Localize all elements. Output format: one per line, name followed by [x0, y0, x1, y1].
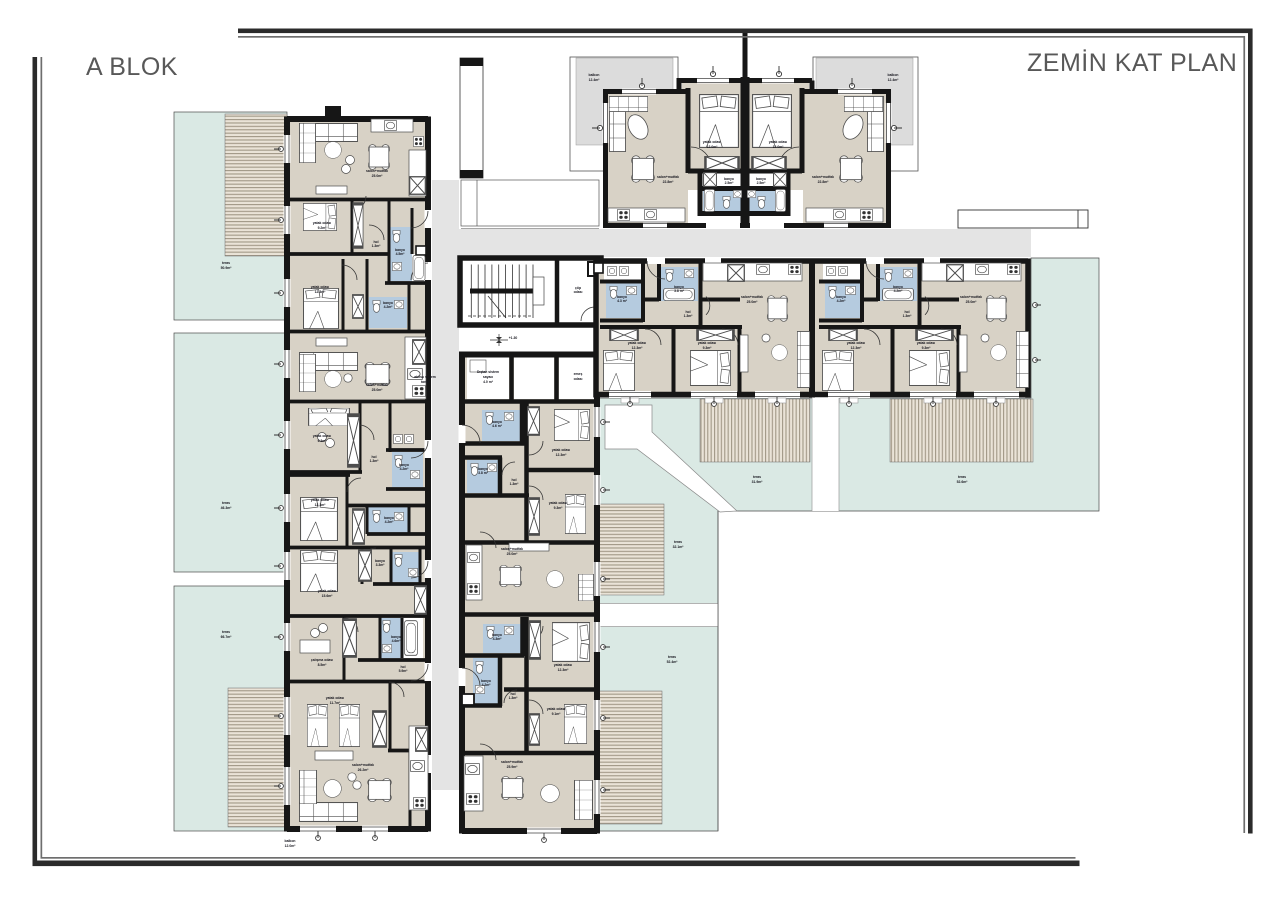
svg-text:25.0m²: 25.0m²: [507, 552, 519, 556]
svg-text:yatak odası: yatak odası: [547, 707, 566, 711]
svg-text:yatak odası: yatak odası: [552, 448, 571, 452]
svg-text:12.3m²: 12.3m²: [315, 290, 327, 294]
svg-text:1.3m²: 1.3m²: [903, 314, 913, 318]
svg-text:salon+mutfak: salon+mutfak: [366, 383, 388, 387]
svg-text:9.1m²: 9.1m²: [552, 712, 562, 716]
svg-text:teras: teras: [958, 475, 966, 479]
svg-text:25.0m²: 25.0m²: [372, 388, 384, 392]
svg-text:8.5m²: 8.5m²: [318, 663, 328, 667]
svg-text:15.6m²: 15.6m²: [322, 594, 334, 598]
svg-text:12.4m²: 12.4m²: [589, 78, 601, 82]
svg-text:3.8 m²: 3.8 m²: [674, 289, 685, 293]
svg-text:22.8m²: 22.8m²: [818, 180, 830, 184]
svg-text:yatak odası: yatak odası: [847, 341, 866, 345]
svg-text:4.2m²: 4.2m²: [400, 467, 410, 471]
svg-text:9.3m²: 9.3m²: [703, 346, 713, 350]
svg-text:4.5m²: 4.5m²: [396, 252, 406, 256]
svg-text:balkon: balkon: [589, 73, 600, 77]
svg-text:1.3m²: 1.3m²: [684, 314, 694, 318]
svg-text:salon+mutfak: salon+mutfak: [501, 547, 523, 551]
svg-text:4.0 m²: 4.0 m²: [483, 380, 494, 384]
svg-text:12.0m²: 12.0m²: [707, 145, 719, 149]
svg-text:yatak odası: yatak odası: [698, 341, 717, 345]
svg-text:4.2m²: 4.2m²: [837, 299, 847, 303]
svg-text:teras: teras: [222, 630, 230, 634]
svg-text:12.0m²: 12.0m²: [773, 145, 785, 149]
svg-text:+1.30: +1.30: [509, 336, 518, 340]
svg-text:teras: teras: [222, 501, 230, 505]
svg-text:1.3m²: 1.3m²: [370, 459, 380, 463]
svg-text:9.3m²: 9.3m²: [554, 506, 564, 510]
svg-text:25.0m²: 25.0m²: [747, 300, 759, 304]
svg-text:yatak odası: yatak odası: [318, 589, 337, 593]
svg-text:50.9m²: 50.9m²: [221, 266, 233, 270]
svg-text:9.3m²: 9.3m²: [922, 346, 932, 350]
svg-text:32.1m²: 32.1m²: [673, 545, 685, 549]
svg-text:salon+mutfak: salon+mutfak: [366, 169, 388, 173]
svg-text:yatak odası: yatak odası: [917, 341, 936, 345]
svg-text:teras: teras: [222, 261, 230, 265]
svg-text:salon+mutfak: salon+mutfak: [741, 295, 763, 299]
svg-text:ZEMİN KAT PLAN: ZEMİN KAT PLAN: [1027, 48, 1237, 77]
svg-text:9.2m²: 9.2m²: [318, 226, 328, 230]
svg-text:4.2m²: 4.2m²: [384, 305, 394, 309]
svg-text:3.8 m²: 3.8 m²: [478, 471, 489, 475]
svg-text:12.3m²: 12.3m²: [851, 346, 863, 350]
svg-text:salon+mutfak: salon+mutfak: [657, 175, 679, 179]
svg-text:emeş: emeş: [574, 372, 583, 376]
svg-text:52.4m²: 52.4m²: [667, 660, 679, 664]
svg-text:4.6m²: 4.6m²: [392, 639, 402, 643]
svg-text:46.3m²: 46.3m²: [221, 506, 233, 510]
svg-text:odası: odası: [574, 377, 583, 381]
svg-text:teras: teras: [753, 475, 761, 479]
svg-text:salon+mutfak: salon+mutfak: [501, 760, 523, 764]
svg-text:odası: odası: [574, 290, 583, 294]
svg-text:4.2m²: 4.2m²: [385, 520, 395, 524]
svg-text:yatak odası: yatak odası: [769, 140, 788, 144]
svg-text:salon+mutfak: salon+mutfak: [352, 763, 374, 767]
svg-text:yatak odası: yatak odası: [554, 663, 573, 667]
svg-text:4.2m²: 4.2m²: [482, 683, 492, 687]
svg-text:12.3m²: 12.3m²: [315, 503, 327, 507]
svg-text:teras: teras: [668, 655, 676, 659]
svg-text:12.3m²: 12.3m²: [632, 346, 644, 350]
svg-text:4.6 m²: 4.6 m²: [492, 424, 503, 428]
svg-text:yatak odası: yatak odası: [703, 140, 722, 144]
svg-text:31.9m²: 31.9m²: [752, 480, 764, 484]
svg-text:4.2m²: 4.2m²: [894, 289, 904, 293]
svg-text:66.7m²: 66.7m²: [221, 635, 233, 639]
svg-text:1.3m²: 1.3m²: [372, 244, 382, 248]
svg-text:22.8m²: 22.8m²: [663, 180, 675, 184]
svg-text:teras: teras: [674, 540, 682, 544]
svg-text:25.9m²: 25.9m²: [507, 765, 519, 769]
svg-text:5.9m²: 5.9m²: [399, 669, 409, 673]
svg-text:yatak odası: yatak odası: [311, 498, 330, 502]
svg-text:yatak odası: yatak odası: [628, 341, 647, 345]
svg-text:25.0m²: 25.0m²: [372, 174, 384, 178]
svg-text:çalışma odası: çalışma odası: [311, 658, 333, 662]
svg-text:atıksu sistem: atıksu sistem: [414, 375, 436, 379]
svg-text:25.0m²: 25.0m²: [966, 300, 978, 304]
svg-text:26.2m²: 26.2m²: [358, 768, 370, 772]
svg-text:12.3m²: 12.3m²: [558, 668, 570, 672]
svg-text:3.3m²: 3.3m²: [376, 563, 386, 567]
svg-text:4.3m²: 4.3m²: [493, 637, 503, 641]
svg-text:balkon: balkon: [888, 73, 899, 77]
svg-text:yatak odası: yatak odası: [326, 696, 345, 700]
svg-text:yatak odası: yatak odası: [313, 434, 332, 438]
svg-text:balkon: balkon: [285, 839, 296, 843]
svg-text:2.5m²: 2.5m²: [725, 181, 735, 185]
svg-text:1.3m²: 1.3m²: [510, 482, 520, 486]
svg-text:Dıştan sistem: Dıştan sistem: [477, 370, 499, 374]
svg-text:52.6m²: 52.6m²: [957, 480, 969, 484]
svg-text:11.7m²: 11.7m²: [330, 701, 341, 705]
svg-text:12.0m²: 12.0m²: [285, 844, 297, 848]
svg-text:salon+mutfak: salon+mutfak: [812, 175, 834, 179]
svg-text:yatak odası: yatak odası: [549, 501, 568, 505]
svg-text:1.3m²: 1.3m²: [509, 696, 519, 700]
svg-text:2.5m²: 2.5m²: [757, 181, 767, 185]
svg-text:yatak odası: yatak odası: [313, 221, 332, 225]
svg-text:4.3 m²: 4.3 m²: [617, 299, 628, 303]
svg-text:sayacı: sayacı: [483, 375, 493, 379]
svg-text:yatak odası: yatak odası: [311, 285, 330, 289]
svg-text:6.3m²: 6.3m²: [318, 439, 328, 443]
svg-text:salon+mutfak: salon+mutfak: [960, 295, 982, 299]
svg-text:12.3m²: 12.3m²: [556, 453, 568, 457]
svg-text:12.4m²: 12.4m²: [888, 78, 900, 82]
svg-text:A BLOK: A BLOK: [86, 53, 178, 81]
svg-text:tankı: tankı: [421, 380, 429, 384]
